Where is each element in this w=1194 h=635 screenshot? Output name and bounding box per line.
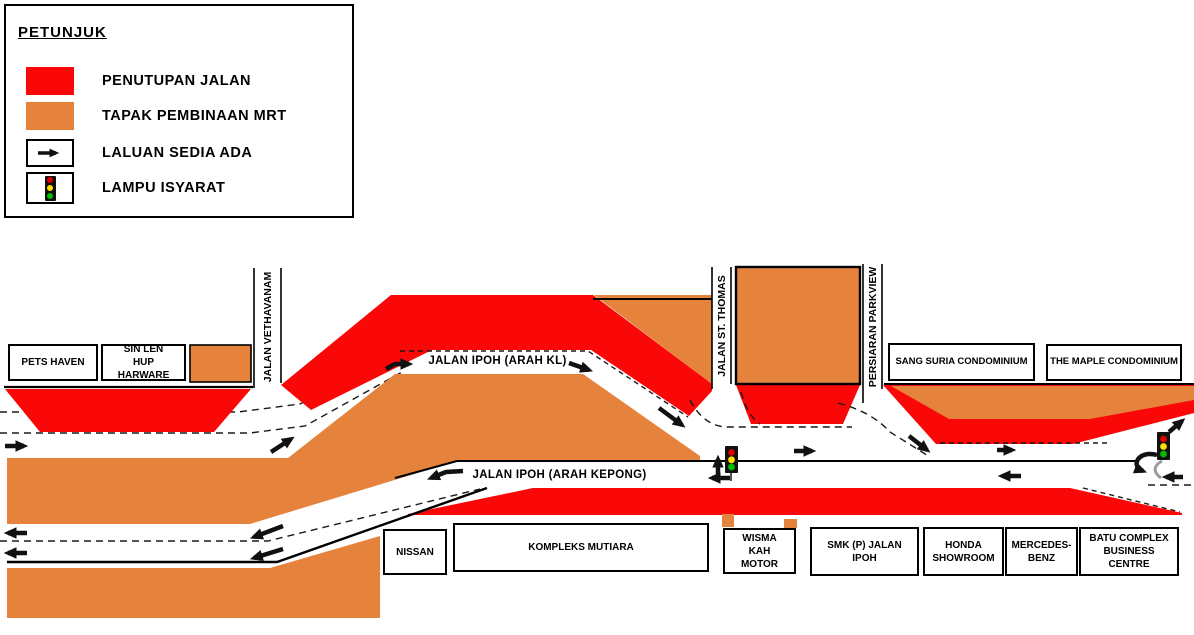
closure-kepong-band [408, 488, 1182, 515]
traffic-light-east [1155, 432, 1170, 478]
road-label-persiaran-parkview: PERSIARAN PARKVIEW [867, 267, 879, 388]
closure-west [5, 389, 251, 432]
building-honda-showroom: HONDA SHOWROOM [923, 527, 1004, 576]
flow-arrow-east [909, 436, 927, 450]
legend-title: PETUNJUK [18, 24, 107, 41]
legend-item-traffic-light: LAMPU ISYARAT [26, 173, 225, 203]
mrt-work-pocket [722, 514, 734, 527]
flow-arrow-east [659, 408, 682, 425]
building-sang-suria: SANG SURIA CONDOMINIUM [888, 343, 1035, 381]
route-arrow-icon [26, 139, 74, 167]
legend-item-road-closure: PENUTUPAN JALAN [26, 66, 251, 96]
building-nissan: NISSAN [383, 529, 447, 575]
legend-item-existing-route: LALUAN SEDIA ADA [26, 138, 252, 168]
legend-item-label: PENUTUPAN JALAN [102, 73, 251, 89]
building-maple: THE MAPLE CONDOMINIUM [1046, 344, 1182, 381]
building-sin-len-hup: SIN LEN HUP HARWARE [101, 344, 186, 381]
legend-item-label: LAMPU ISYARAT [102, 180, 225, 196]
road-label-jalan-st-thomas: JALAN ST. THOMAS [716, 275, 728, 377]
legend-item-mrt-site: TAPAK PEMBINAAN MRT [26, 101, 287, 131]
building-kompleks-mutiara: KOMPLEKS MUTIARA [453, 523, 709, 572]
mrt-work-pocket [784, 519, 797, 528]
mrt-site-square-center [736, 267, 860, 384]
closure-swatch [26, 67, 74, 95]
legend: PETUNJUK PENUTUPAN JALAN TAPAK PEMBINAAN… [4, 4, 354, 218]
road-label-jalan-vethavanam: JALAN VETHAVANAM [262, 272, 274, 382]
flow-arrow-west [254, 526, 283, 537]
building-wisma-kah-motor: WISMA KAH MOTOR [723, 528, 796, 574]
flow-arrow-east [271, 439, 291, 452]
road-label-jalan-ipoh-kl: JALAN IPOH (ARAH KL) [400, 355, 595, 367]
building-mercedes-benz: MERCEDES- BENZ [1005, 527, 1078, 576]
mrt-site-box-west [190, 345, 251, 382]
mrt-site-south-band [7, 536, 380, 618]
building-pets-haven: PETS HAVEN [8, 344, 98, 381]
building-smk-jalan-ipoh: SMK (P) JALAN IPOH [810, 527, 919, 576]
site-swatch [26, 102, 74, 130]
flow-arrow-west [254, 549, 283, 558]
flow-arrow-east [1169, 421, 1182, 432]
traffic-management-diagram: { "colors": { "closure": "#FA0707", "sit… [0, 0, 1194, 635]
legend-item-label: TAPAK PEMBINAAN MRT [102, 108, 287, 124]
road-label-jalan-ipoh-kepong: JALAN IPOH (ARAH KEPONG) [452, 469, 667, 481]
traffic-light-icon [26, 172, 74, 204]
legend-item-label: LALUAN SEDIA ADA [102, 145, 252, 161]
building-batu-complex: BATU COMPLEX BUSINESS CENTRE [1079, 527, 1179, 576]
